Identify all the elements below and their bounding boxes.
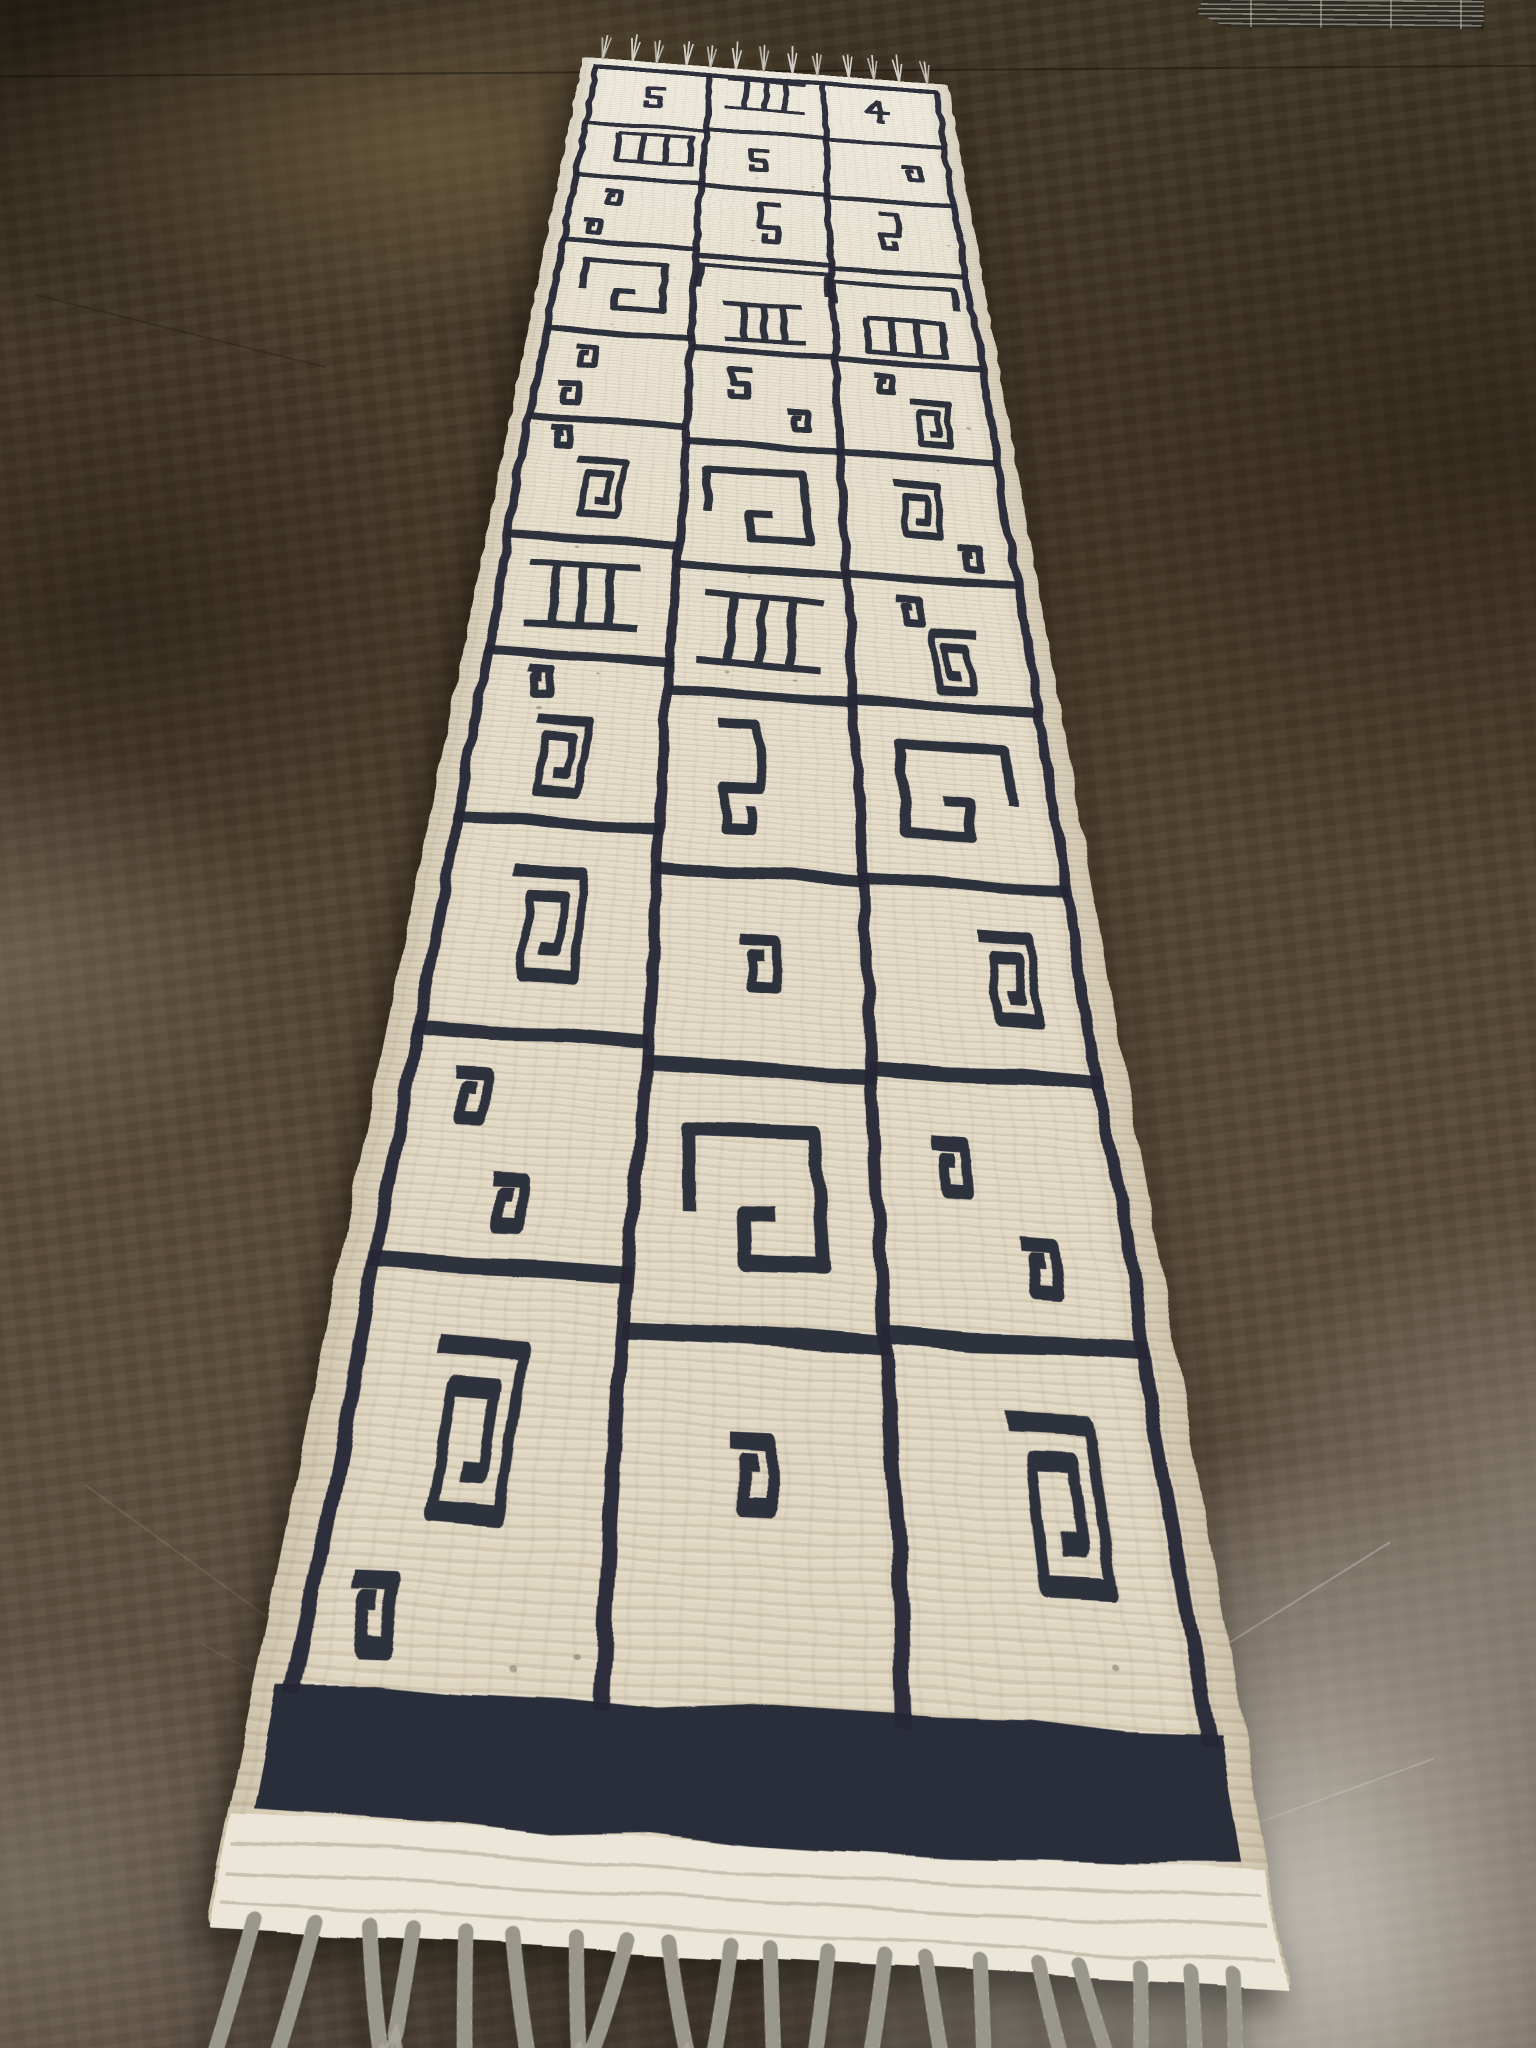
rug-shadow-wrap [0,0,1536,2048]
rug-artwork [205,57,1291,1989]
runner-rug [176,52,1316,2048]
showroom-photo: Ivory and black geometric wool runner ru… [0,0,1536,2048]
rug-pattern-svg [176,52,1316,2048]
